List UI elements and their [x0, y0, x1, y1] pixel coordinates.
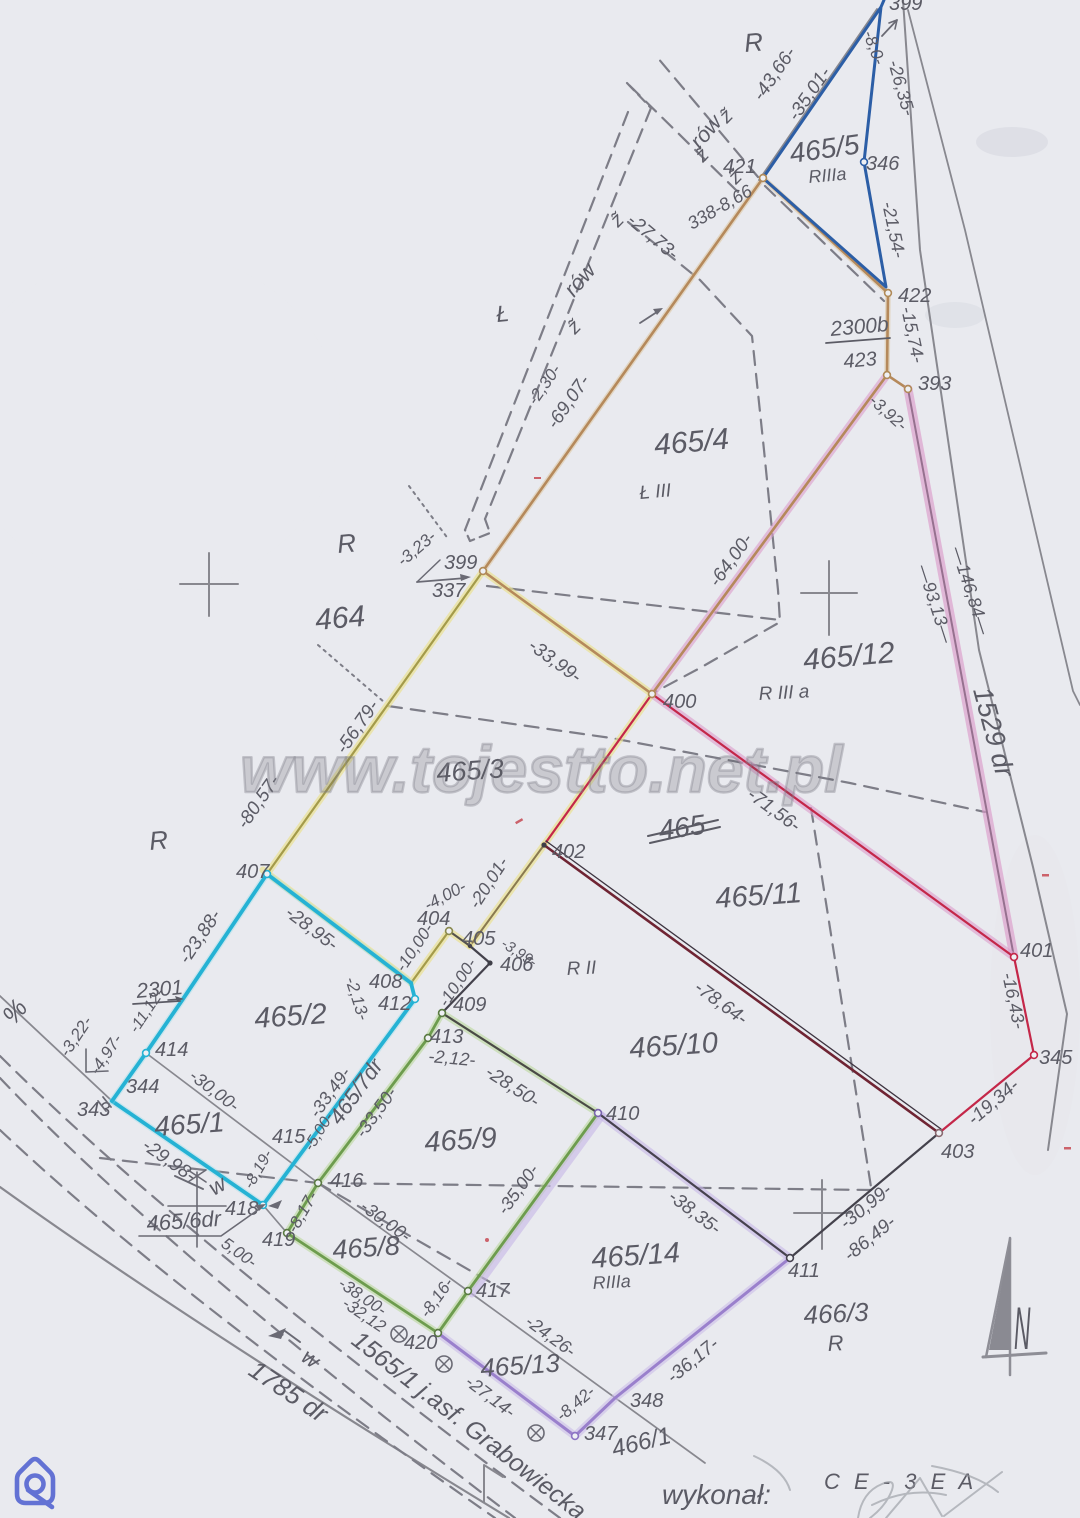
svg-text:R: R [827, 1330, 844, 1356]
svg-text:407: 407 [236, 861, 270, 883]
svg-text:400: 400 [663, 691, 696, 713]
svg-text:401: 401 [1020, 940, 1053, 962]
svg-text:R III a: R III a [758, 681, 810, 705]
svg-text:464: 464 [314, 600, 367, 637]
svg-text:418: 418 [225, 1198, 258, 1220]
svg-text:465/9: 465/9 [423, 1122, 498, 1159]
svg-text:465/10: 465/10 [628, 1027, 719, 1065]
svg-text:347: 347 [584, 1423, 618, 1445]
svg-text:465/14: 465/14 [590, 1237, 681, 1275]
svg-text:337: 337 [432, 580, 466, 602]
svg-text:466/3: 466/3 [803, 1297, 870, 1330]
svg-text:Ł III: Ł III [639, 480, 673, 504]
svg-text:416: 416 [330, 1170, 364, 1192]
svg-text:412: 412 [378, 993, 411, 1015]
svg-text:465/4: 465/4 [653, 423, 731, 462]
svg-text:346: 346 [866, 153, 900, 175]
svg-text:465/2: 465/2 [253, 998, 328, 1035]
svg-text:414: 414 [155, 1039, 188, 1061]
svg-text:393: 393 [918, 373, 951, 395]
svg-text:wykonał:: wykonał: [662, 1479, 771, 1510]
svg-text:-2,12-: -2,12- [428, 1046, 477, 1070]
svg-text:405: 405 [462, 928, 496, 950]
svg-text:C E - 3 E A: C E - 3 E A [824, 1469, 977, 1494]
svg-text:402: 402 [552, 841, 585, 863]
svg-text:423: 423 [843, 348, 878, 373]
svg-text:RIIIa: RIIIa [808, 164, 848, 187]
svg-text:R II: R II [566, 957, 597, 980]
svg-text:408: 408 [369, 971, 402, 993]
svg-text:N: N [1014, 1295, 1031, 1362]
svg-text:403: 403 [941, 1141, 974, 1163]
svg-text:R: R [336, 527, 357, 559]
svg-text:348: 348 [630, 1390, 663, 1412]
svg-text:419: 419 [262, 1229, 295, 1251]
svg-text:RIIIa: RIIIa [592, 1271, 631, 1293]
svg-text:465/11: 465/11 [714, 877, 803, 915]
svg-text:R: R [743, 26, 764, 58]
svg-text:465/1: 465/1 [153, 1106, 225, 1142]
svg-text:399: 399 [444, 552, 477, 574]
svg-text:465/6dr: 465/6dr [146, 1206, 224, 1236]
svg-text:417: 417 [476, 1280, 510, 1302]
svg-text:344: 344 [126, 1076, 159, 1098]
svg-text:www.tojestto.net.pl: www.tojestto.net.pl [240, 732, 844, 806]
svg-text:413: 413 [430, 1026, 463, 1048]
svg-text:420: 420 [404, 1332, 437, 1354]
svg-text:345: 345 [1039, 1047, 1073, 1069]
svg-text:Ł: Ł [495, 300, 510, 327]
svg-text:465/13: 465/13 [479, 1347, 561, 1383]
svg-text:411: 411 [788, 1260, 820, 1282]
svg-text:399: 399 [889, 0, 922, 15]
svg-text:410: 410 [606, 1103, 639, 1125]
svg-text:R: R [148, 824, 169, 856]
svg-text:422: 422 [898, 285, 931, 307]
